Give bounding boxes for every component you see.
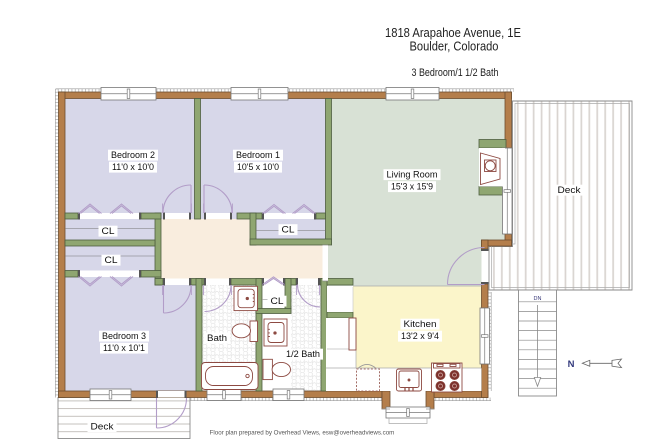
svg-text:1/2 Bath: 1/2 Bath xyxy=(286,349,320,360)
svg-text:Boulder, Colorado: Boulder, Colorado xyxy=(410,38,499,53)
svg-text:11'0 x 10'1: 11'0 x 10'1 xyxy=(103,343,145,354)
svg-text:DN: DN xyxy=(534,296,542,302)
svg-text:Deck: Deck xyxy=(558,185,581,196)
svg-text:Bedroom 3: Bedroom 3 xyxy=(102,331,146,342)
svg-text:CL: CL xyxy=(271,296,284,307)
svg-text:CL: CL xyxy=(282,225,295,236)
svg-text:Living Room: Living Room xyxy=(387,170,438,181)
svg-text:3 Bedroom/1 1/2 Bath: 3 Bedroom/1 1/2 Bath xyxy=(412,67,499,79)
svg-text:10'5 x 10'0: 10'5 x 10'0 xyxy=(237,162,279,173)
svg-text:Deck: Deck xyxy=(91,422,114,433)
svg-text:Bedroom 1: Bedroom 1 xyxy=(236,150,280,161)
svg-text:CL: CL xyxy=(105,255,118,266)
svg-text:N: N xyxy=(568,359,575,370)
svg-text:Bedroom 2: Bedroom 2 xyxy=(111,150,155,161)
svg-text:Kitchen: Kitchen xyxy=(404,319,437,330)
svg-text:13'2 x 9'4: 13'2 x 9'4 xyxy=(401,331,439,342)
svg-text:Floor plan prepared by Overhea: Floor plan prepared by Overhead Views, e… xyxy=(210,430,395,437)
svg-text:15'3 x 15'9: 15'3 x 15'9 xyxy=(391,182,433,193)
svg-text:Bath: Bath xyxy=(207,333,227,344)
svg-text:11'0 x 10'0: 11'0 x 10'0 xyxy=(112,162,154,173)
svg-text:CL: CL xyxy=(102,226,115,237)
